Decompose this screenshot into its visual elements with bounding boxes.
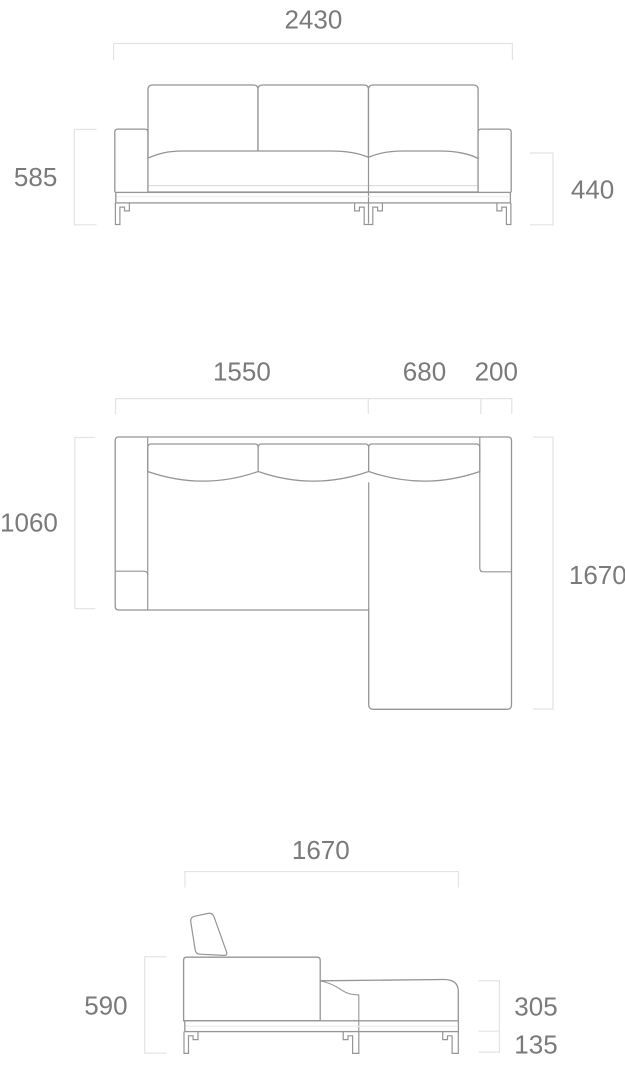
svg-text:1670: 1670 [569, 560, 625, 590]
svg-text:1670: 1670 [292, 835, 350, 865]
svg-text:1550: 1550 [213, 357, 271, 387]
svg-text:585: 585 [14, 162, 57, 192]
svg-text:2430: 2430 [284, 4, 342, 34]
svg-text:1060: 1060 [0, 508, 58, 538]
svg-text:680: 680 [403, 357, 446, 387]
svg-text:590: 590 [84, 990, 127, 1020]
svg-text:135: 135 [514, 1030, 557, 1060]
svg-text:440: 440 [571, 175, 614, 205]
svg-text:305: 305 [514, 991, 557, 1021]
svg-text:200: 200 [475, 357, 518, 387]
